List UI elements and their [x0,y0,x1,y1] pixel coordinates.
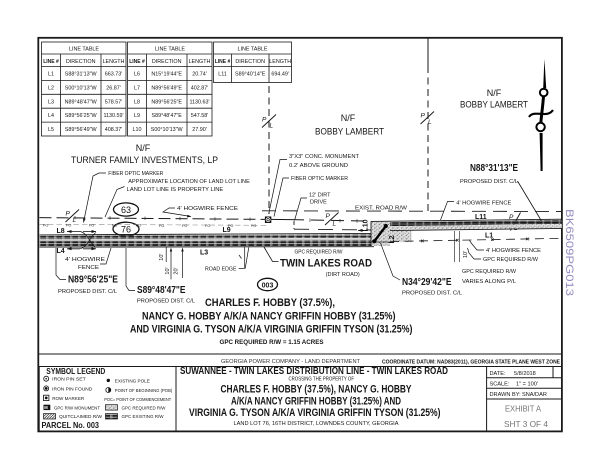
svg-text:COORDINATE DATUM: NAD83(2011),: COORDINATE DATUM: NAD83(2011), GEORGIA S… [382,359,560,365]
svg-text:GEORGIA POWER COMPANY - LAND: GEORGIA POWER COMPANY - LAND DEPARTMENT [221,359,361,365]
svg-text:VIRGINIA G. TYSON A/K/A VIRGIN: VIRGINIA G. TYSON A/K/A VIRGINIA GRIFFIN… [189,407,441,419]
svg-text:L: L [270,123,274,130]
svg-text:FO: FO [43,223,48,227]
svg-text:S89°48'47"E: S89°48'47"E [137,285,186,296]
svg-text:PROPOSED DIST. C/L: PROPOSED DIST. C/L [402,291,462,297]
svg-text:SYMBOL LEGEND: SYMBOL LEGEND [46,367,105,376]
svg-text:N34°29'42"E: N34°29'42"E [402,277,452,288]
svg-text:10': 10' [165,267,171,274]
svg-text:M: M [44,405,48,410]
svg-text:GPC REQUIRED R/W: GPC REQUIRED R/W [483,257,539,263]
svg-text:DIRECTION: DIRECTION [235,59,265,65]
svg-text:26.87': 26.87' [106,85,121,91]
svg-text:PARCEL No. 003: PARCEL No. 003 [42,421,100,430]
svg-text:N89°48'47"W: N89°48'47"W [65,99,98,105]
svg-text:AND VIRGINIA G. TYSON A/K/A VI: AND VIRGINIA G. TYSON A/K/A VIRGINIA GRI… [130,324,413,336]
svg-text:LINE TABLE: LINE TABLE [237,47,267,53]
svg-text:FENCE: FENCE [78,265,99,271]
svg-text:FIBER OPTIC MARKER: FIBER OPTIC MARKER [291,176,348,182]
svg-text:ROW MARKER: ROW MARKER [52,396,84,402]
svg-text:BOBBY LAMBERT: BOBBY LAMBERT [315,127,384,137]
svg-text:SHT 3 OF 4: SHT 3 OF 4 [504,419,548,429]
svg-text:DIRECTION: DIRECTION [152,59,182,65]
svg-text:POINT OF BEGINNING (POB): POINT OF BEGINNING (POB) [115,388,173,394]
svg-text:SUWANNEE - TWIN LAKES DISTRIBU: SUWANNEE - TWIN LAKES DISTRIBUTION LINE … [180,366,448,377]
svg-text:CHARLES F. HOBBY (37.5%),: CHARLES F. HOBBY (37.5%), [205,297,335,309]
svg-text:4' HOGWIRE FENCE: 4' HOGWIRE FENCE [177,206,238,212]
svg-text:FO: FO [89,224,94,228]
svg-text:S00°10'13"W: S00°10'13"W [151,127,184,133]
svg-text:694.49': 694.49' [271,72,289,78]
svg-text:578.57': 578.57' [105,99,123,105]
svg-text:N88°31'13"E: N88°31'13"E [470,163,518,174]
svg-text:L5: L5 [48,127,54,133]
svg-text:1" = 100': 1" = 100' [516,381,538,387]
svg-text:DIRECTION: DIRECTION [66,59,96,65]
svg-text:S89°56'49"W: S89°56'49"W [65,127,98,133]
svg-text:LENGTH: LENGTH [189,59,211,65]
svg-text:S89°48'47"E: S89°48'47"E [152,113,183,119]
svg-text:GPC REQUIRED R/W: GPC REQUIRED R/W [295,250,343,256]
svg-text:L11: L11 [475,214,487,221]
svg-text:PROPOSED DIST. C/L: PROPOSED DIST. C/L [58,289,117,295]
svg-text:L10: L10 [133,127,142,133]
svg-text:GPC REQUIRED R/W: GPC REQUIRED R/W [462,269,517,275]
svg-text:L7: L7 [134,85,140,91]
svg-text:APPROXIMATE LOCATION OF LAND L: APPROXIMATE LOCATION OF LAND LOT LINE [128,179,250,185]
svg-text:SNA/DAR: SNA/DAR [522,392,547,398]
svg-text:N/F: N/F [341,113,356,123]
svg-text:IRON PIN FOUND: IRON PIN FOUND [52,386,93,392]
svg-text:1130.63': 1130.63' [189,99,209,105]
svg-text:GPC R/W MONUMENT: GPC R/W MONUMENT [54,405,100,411]
svg-text:TWIN LAKES ROAD: TWIN LAKES ROAD [280,258,372,270]
svg-text:S89°56'25"W: S89°56'25"W [65,113,98,119]
svg-text:BK6509PG013: BK6509PG013 [563,209,575,296]
svg-text:TURNER FAMILY INVESTMENTS, LP: TURNER FAMILY INVESTMENTS, LP [71,155,218,165]
svg-text:L11: L11 [218,72,227,78]
svg-text:N89°56'25"E: N89°56'25"E [68,275,118,286]
svg-text:20': 20' [173,267,179,274]
svg-text:EXISTING POLE: EXISTING POLE [115,378,150,384]
svg-text:S88°31'13"W: S88°31'13"W [65,72,98,78]
svg-text:CROSSING THE PROPERTY OF: CROSSING THE PROPERTY OF [289,377,355,383]
svg-text:PROPOSED DIST. C/L: PROPOSED DIST. C/L [460,179,518,185]
svg-text:1130.59': 1130.59' [103,113,123,119]
svg-text:10': 10' [159,254,165,261]
svg-text:GPC REQUIRED R/W = 1.15 ACRES: GPC REQUIRED R/W = 1.15 ACRES [220,340,324,346]
svg-text:4' HOGWIRE FENCE: 4' HOGWIRE FENCE [486,248,541,254]
svg-text:P: P [421,113,426,120]
svg-text:DRAWN BY:: DRAWN BY: [490,392,522,398]
svg-text:L: L [73,217,77,224]
svg-text:408.37': 408.37' [105,127,123,133]
svg-text:12' DIRT: 12' DIRT [309,193,331,199]
svg-text:P: P [326,213,331,220]
svg-text:S00°10'13"W: S00°10'13"W [65,85,98,91]
svg-text:LENGTH: LENGTH [269,59,291,65]
svg-text:A/K/A NANCY GRIFFIN HOBBY (31.: A/K/A NANCY GRIFFIN HOBBY (31.25%) AND [231,395,401,407]
svg-text:LINE #: LINE # [215,59,231,65]
svg-text:N89°56'25"E: N89°56'25"E [151,99,182,105]
svg-text:003: 003 [262,283,274,290]
svg-text:CHARLES F. HOBBY (37.5%), NANC: CHARLES F. HOBBY (37.5%), NANCY G. HOBBY [221,383,412,395]
svg-text:QUITCLAIMED R/W: QUITCLAIMED R/W [59,414,102,420]
svg-text:FO: FO [205,224,210,228]
svg-text:63: 63 [121,205,131,215]
svg-text:5/8/2018: 5/8/2018 [514,371,536,377]
svg-text:FO: FO [251,224,256,228]
svg-text:4' HOGWIRE: 4' HOGWIRE [65,257,105,263]
svg-text:LINE #: LINE # [43,59,59,65]
svg-text:LAND LOT 76, 16TH DISTRICT, LO: LAND LOT 76, 16TH DISTRICT, LOWNDES COUN… [234,421,399,427]
svg-text:FO: FO [182,224,187,228]
svg-text:L2: L2 [389,235,396,243]
svg-text:L: L [333,221,337,228]
svg-text:GPC EXISTING R/W: GPC EXISTING R/W [122,414,164,420]
svg-text:0.2' ABOVE GROUND: 0.2' ABOVE GROUND [289,163,348,169]
svg-text:DRIVE: DRIVE [310,200,327,206]
svg-text:FIBER OPTIC MARKER: FIBER OPTIC MARKER [108,171,163,177]
svg-text:N/F: N/F [136,143,151,153]
svg-text:20.74': 20.74' [192,72,207,78]
svg-text:LINE TABLE: LINE TABLE [155,47,185,53]
svg-text:VARIES ALONG P/L: VARIES ALONG P/L [462,279,516,285]
svg-text:L2: L2 [48,85,54,91]
svg-text:N15°19'44"E: N15°19'44"E [151,72,182,78]
svg-text:LAND LOT LINE IS PROPERTY LINE: LAND LOT LINE IS PROPERTY LINE [127,187,224,193]
svg-text:N/F: N/F [487,88,502,98]
svg-text:27.90': 27.90' [192,127,207,133]
svg-text:10': 10' [463,251,469,258]
svg-text:L10: L10 [363,219,370,231]
svg-text:IRON PIN SET: IRON PIN SET [52,377,86,383]
svg-text:DATE:: DATE: [490,371,507,377]
svg-text:L3: L3 [200,250,208,257]
svg-text:LINE TABLE: LINE TABLE [69,47,99,53]
svg-text:3"X3" CONC. MONUMENT: 3"X3" CONC. MONUMENT [289,154,360,160]
svg-text:PROPOSED DIST. C/L: PROPOSED DIST. C/L [137,299,195,305]
svg-text:L1: L1 [48,72,54,78]
svg-text:LINE #: LINE # [129,59,145,65]
svg-text:L4: L4 [57,248,65,255]
svg-text:L: L [428,119,432,126]
svg-text:P: P [262,117,267,124]
svg-text:FO: FO [66,223,71,227]
svg-text:FO: FO [136,224,141,228]
svg-text:POC= POINT OF COMMENCEMENT: POC= POINT OF COMMENCEMENT [104,397,171,403]
svg-text:(DIRT ROAD): (DIRT ROAD) [326,272,360,278]
svg-text:76: 76 [121,225,131,235]
svg-text:L4: L4 [48,113,54,119]
svg-text:L3: L3 [48,99,54,105]
svg-text:FO: FO [112,224,117,228]
svg-text:ROAD EDGE: ROAD EDGE [205,266,237,272]
svg-text:GPC REQUIRED R/W: GPC REQUIRED R/W [122,405,166,411]
svg-text:L8: L8 [134,99,140,105]
svg-text:P: P [66,211,71,218]
svg-text:4' HOGWIRE FENCE: 4' HOGWIRE FENCE [456,201,511,207]
svg-text:L1: L1 [485,233,493,240]
svg-text:SCALE:: SCALE: [490,381,510,387]
svg-text:EXHIBIT A: EXHIBIT A [505,404,541,414]
svg-text:663.73': 663.73' [105,72,123,78]
svg-text:LENGTH: LENGTH [103,59,125,65]
svg-text:FO: FO [159,224,164,228]
svg-text:L9: L9 [223,227,231,234]
svg-text:547.58': 547.58' [191,113,209,119]
svg-text:402.87': 402.87' [191,85,209,91]
svg-text:S89°40'14"E: S89°40'14"E [235,72,266,78]
svg-text:EXIST. ROAD R/W: EXIST. ROAD R/W [355,206,408,212]
svg-text:L8: L8 [57,228,65,235]
svg-text:N89°56'49"E: N89°56'49"E [151,85,182,91]
svg-text:BOBBY LAMBERT: BOBBY LAMBERT [460,100,528,110]
svg-text:NANCY G. HOBBY A/K/A NANCY GRI: NANCY G. HOBBY A/K/A NANCY GRIFFIN HOBBY… [142,311,396,323]
svg-text:L6: L6 [134,72,140,78]
svg-text:L9: L9 [134,113,140,119]
